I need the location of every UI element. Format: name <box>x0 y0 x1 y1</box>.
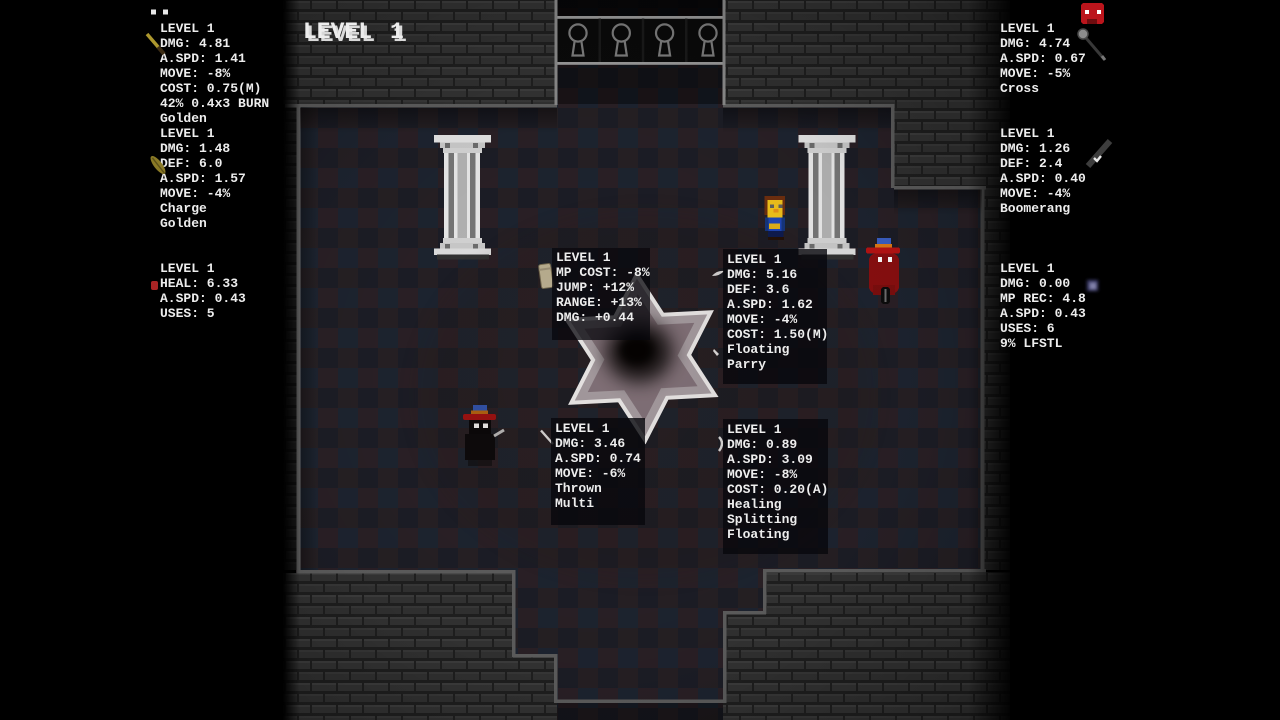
svg-text:Charge: Charge <box>160 201 207 216</box>
svg-text:Golden: Golden <box>160 111 207 126</box>
svg-text:USES: 6: USES: 6 <box>1000 321 1055 336</box>
svg-text:A.SPD: 0.43: A.SPD: 0.43 <box>160 291 246 306</box>
svg-text:MOVE: -8%: MOVE: -8% <box>160 66 230 81</box>
svg-text:COST: 0.75(M): COST: 0.75(M) <box>160 81 261 96</box>
svg-text:DMG: 0.89: DMG: 0.89 <box>727 437 797 452</box>
svg-text:A.SPD: 1.62: A.SPD: 1.62 <box>727 297 813 312</box>
svg-text:Splitting: Splitting <box>727 512 797 527</box>
svg-text:Parry: Parry <box>727 357 766 372</box>
svg-text:MOVE: -8%: MOVE: -8% <box>727 467 797 482</box>
svg-text:Healing: Healing <box>727 497 782 512</box>
svg-text:A.SPD: 0.74: A.SPD: 0.74 <box>555 451 641 466</box>
svg-text:DMG: 1.48: DMG: 1.48 <box>160 141 230 156</box>
svg-text:LEVEL 1: LEVEL 1 <box>160 126 215 141</box>
svg-text:Cross: Cross <box>1000 81 1039 96</box>
svg-text:MOVE: -6%: MOVE: -6% <box>555 466 625 481</box>
svg-text:DMG: 0.00: DMG: 0.00 <box>1000 276 1070 291</box>
svg-text:42% 0.4x3 BURN: 42% 0.4x3 BURN <box>160 96 269 111</box>
svg-text:LEVEL: LEVEL <box>303 19 372 45</box>
svg-text:DEF: 6.0: DEF: 6.0 <box>160 156 223 171</box>
svg-text:LEVEL 1: LEVEL 1 <box>556 250 611 265</box>
svg-text:LEVEL 1: LEVEL 1 <box>160 21 215 36</box>
svg-text:MOVE: -5%: MOVE: -5% <box>1000 66 1070 81</box>
svg-text:COST: 0.20(A): COST: 0.20(A) <box>727 482 828 497</box>
svg-text:LEVEL 1: LEVEL 1 <box>727 252 782 267</box>
svg-text:A.SPD: 0.40: A.SPD: 0.40 <box>1000 171 1086 186</box>
svg-text:Golden: Golden <box>160 216 207 231</box>
svg-text:LEVEL 1: LEVEL 1 <box>1000 261 1055 276</box>
svg-text:A.SPD: 3.09: A.SPD: 3.09 <box>727 452 813 467</box>
svg-text:Floating: Floating <box>727 342 790 357</box>
svg-text:JUMP: +12%: JUMP: +12% <box>556 280 634 295</box>
svg-text:USES: 5: USES: 5 <box>160 306 215 321</box>
svg-text:COST: 1.50(M): COST: 1.50(M) <box>727 327 828 342</box>
svg-text:MP REC: 4.8: MP REC: 4.8 <box>1000 291 1086 306</box>
svg-text:HEAL: 6.33: HEAL: 6.33 <box>160 276 238 291</box>
svg-text:9% LFSTL: 9% LFSTL <box>1000 336 1063 351</box>
svg-text:LEVEL 1: LEVEL 1 <box>1000 21 1055 36</box>
svg-text:DEF: 2.4: DEF: 2.4 <box>1000 156 1063 171</box>
svg-text:DMG: 5.16: DMG: 5.16 <box>727 267 797 282</box>
svg-text:MOVE: -4%: MOVE: -4% <box>160 186 230 201</box>
svg-text:MOVE: -4%: MOVE: -4% <box>1000 186 1070 201</box>
svg-text:Multi: Multi <box>555 496 594 511</box>
svg-text:LEVEL 1: LEVEL 1 <box>1000 126 1055 141</box>
svg-text:Thrown: Thrown <box>555 481 602 496</box>
svg-text:Floating: Floating <box>727 527 790 542</box>
svg-text:MOVE: -4%: MOVE: -4% <box>727 312 797 327</box>
svg-text:DMG: 3.46: DMG: 3.46 <box>555 436 625 451</box>
svg-text:1: 1 <box>390 19 404 45</box>
svg-text:LEVEL 1: LEVEL 1 <box>727 422 782 437</box>
svg-text:DEF: 3.6: DEF: 3.6 <box>727 282 790 297</box>
svg-text:DMG: 4.74: DMG: 4.74 <box>1000 36 1070 51</box>
svg-text:A.SPD: 0.43: A.SPD: 0.43 <box>1000 306 1086 321</box>
svg-text:A.SPD: 1.41: A.SPD: 1.41 <box>160 51 246 66</box>
svg-text:LEVEL 1: LEVEL 1 <box>160 261 215 276</box>
svg-text:MP COST: -8%: MP COST: -8% <box>556 265 650 280</box>
svg-text:DMG: +0.44: DMG: +0.44 <box>556 310 634 325</box>
svg-text:Boomerang: Boomerang <box>1000 201 1070 216</box>
svg-text:DMG: 1.26: DMG: 1.26 <box>1000 141 1070 156</box>
svg-text:DMG: 4.81: DMG: 4.81 <box>160 36 230 51</box>
svg-text:A.SPD: 0.67: A.SPD: 0.67 <box>1000 51 1086 66</box>
svg-text:RANGE: +13%: RANGE: +13% <box>556 295 642 310</box>
svg-text:LEVEL 1: LEVEL 1 <box>555 421 610 436</box>
svg-text:A.SPD: 1.57: A.SPD: 1.57 <box>160 171 246 186</box>
